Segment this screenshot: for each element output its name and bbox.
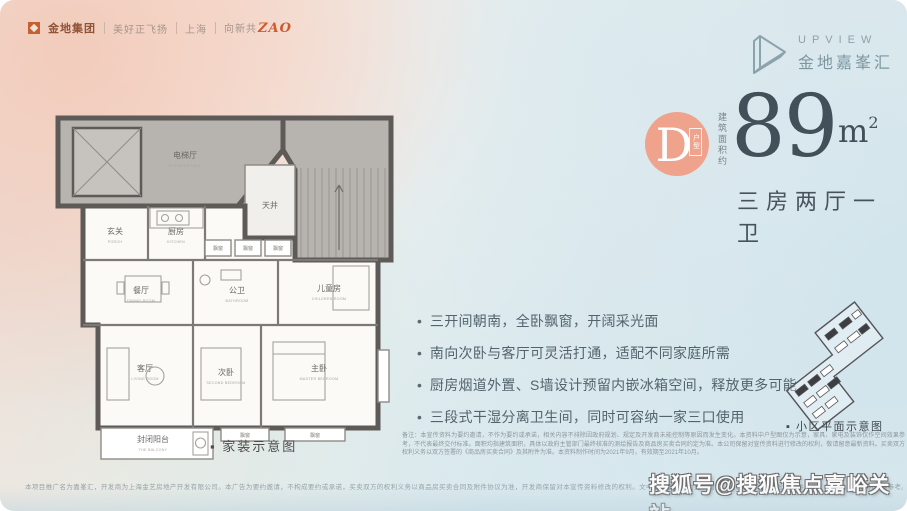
brand-bar: 金地集团 美好正飞扬 上海 向新共ZAO — [28, 19, 292, 37]
feature-item: • 三开间朝南，全卧飘窗，开阔采光面 — [417, 313, 787, 330]
room-label: 天井 — [262, 200, 278, 210]
room-label: 儿童房 — [317, 283, 341, 293]
room-label: 飘窗 — [310, 432, 320, 439]
brand-slogan-2: 上海 — [185, 21, 207, 36]
bullet-icon: • — [417, 313, 422, 330]
room-label: 飘窗 — [273, 245, 283, 252]
room-label-en: LIVING ROOM — [131, 377, 158, 381]
room-label: 主卧 — [311, 363, 327, 373]
project-name-en: UPVIEW — [798, 34, 893, 46]
project-name-cn: 金地嘉峯汇 — [798, 49, 893, 73]
room-label-en: BATHROOM — [226, 299, 249, 303]
disclaimer-right-block: 备注：本宣传资料为要约邀请，不作为要约或承诺，相关内容不排除因政府规划、规定及开… — [402, 432, 905, 458]
area-prefix-label: 建筑面积约 — [716, 112, 729, 172]
gemdale-logo-icon — [28, 22, 40, 34]
floorplan-drawing: 电梯厅 ELEVATOR HALL 天井 玄关 PORCH 厨房 KITCHEN… — [33, 110, 405, 464]
feature-text: 三段式干湿分离卫生间，同时可容纳一家三口使用 — [430, 409, 745, 426]
room-label: 次卧 — [218, 367, 234, 377]
bullet-icon: • — [417, 345, 422, 362]
watermark: 搜狐号@搜狐焦点嘉峪关站 — [649, 469, 907, 511]
room-label: 客厅 — [137, 363, 153, 373]
room-label-en: KITCHEN — [167, 240, 185, 244]
room-label-en: ELEVATOR HALL — [169, 164, 201, 168]
feature-text: 南向次卧与客厅可灵活打通，适配不同家庭所需 — [430, 345, 730, 362]
upview-triangle-icon — [747, 31, 789, 75]
floorplan-caption: ▪ 家装示意图 — [210, 436, 297, 455]
room-label-en: PORCH — [108, 240, 123, 244]
feature-text: 三开间朝南，全卧飘窗，开阔采光面 — [430, 313, 659, 330]
poster-canvas: 金地集团 美好正飞扬 上海 向新共ZAO UPVIEW 金地嘉峯汇 D 户型 建… — [0, 0, 907, 511]
room-label: 飘窗 — [213, 245, 223, 252]
room-label: 飘窗 — [243, 245, 253, 252]
feature-item: • 三段式干湿分离卫生间，同时可容纳一家三口使用 — [417, 409, 787, 426]
room-label: 电梯厅 — [173, 150, 197, 160]
unit-badge: D 户型 — [645, 112, 709, 176]
brand-slogan-3: 向新共ZAO — [224, 20, 292, 36]
room-label: 封闭阳台 — [137, 434, 169, 444]
brand-slogan-1: 美好正飞扬 — [113, 21, 168, 36]
siteplan-drawing — [760, 300, 907, 432]
divider — [215, 22, 216, 34]
unit-layout-text: 三房两厅一卫 — [737, 184, 907, 248]
area-unit: m2 — [838, 112, 879, 150]
room-label-en: DINING ROOM — [127, 299, 155, 303]
brand-slogan-accent: ZAO — [258, 21, 292, 36]
unit-badge-tag: 户型 — [689, 128, 702, 156]
gemdale-logo-text: 金地集团 — [48, 20, 96, 36]
feature-item: • 厨房烟道外置、S墙设计预留内嵌冰箱空间，释放更多可能 — [417, 377, 787, 394]
bullet-icon: • — [417, 377, 422, 394]
room-label-en: MASTER BEDROOM — [300, 377, 339, 381]
room-label: 厨房 — [168, 226, 184, 236]
area-value: 89 — [731, 84, 836, 170]
room-label-en: CHILDREN ROOM — [312, 297, 346, 301]
room-label: 餐厅 — [133, 286, 149, 295]
bullet-icon: • — [417, 409, 422, 426]
feature-item: • 南向次卧与客厅可灵活打通，适配不同家庭所需 — [417, 345, 787, 362]
feature-text: 厨房烟道外置、S墙设计预留内嵌冰箱空间，释放更多可能 — [430, 377, 797, 394]
room-label-en: THE BALCONY — [139, 448, 168, 452]
siteplan-boundary — [769, 302, 902, 430]
room-label: 玄关 — [107, 226, 123, 236]
project-logo: UPVIEW 金地嘉峯汇 — [747, 31, 893, 75]
room-label: 公卫 — [229, 286, 245, 295]
divider — [104, 22, 105, 34]
feature-list: • 三开间朝南，全卧飘窗，开阔采光面 • 南向次卧与客厅可灵活打通，适配不同家庭… — [417, 313, 787, 441]
room-label-en: SECOND BEDROOM — [206, 381, 245, 385]
divider — [176, 22, 177, 34]
